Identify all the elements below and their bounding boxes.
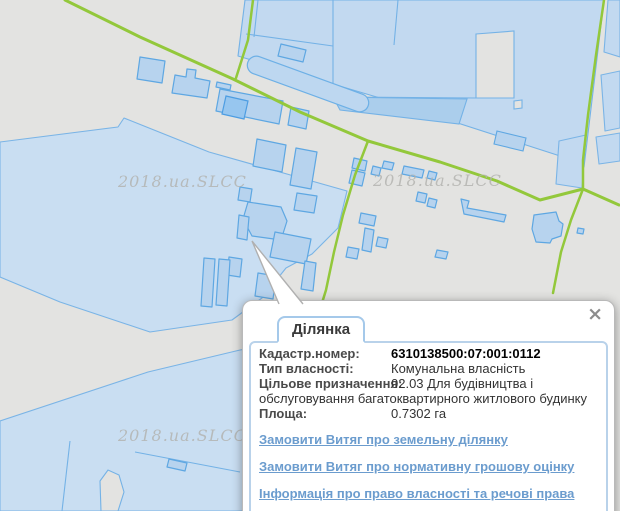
map-watermark: 2018.ua.SLCC [372, 171, 502, 190]
field-label: Кадастр.номер: [259, 346, 391, 361]
link-order-extract-valuation[interactable]: Замовити Витяг про нормативну грошову оц… [259, 459, 598, 474]
map-zone[interactable] [556, 135, 586, 188]
parcel-details-panel: Кадастр.номер:6310138500:07:001:0112 Тип… [249, 341, 608, 511]
map-parcel[interactable] [577, 228, 584, 234]
map-parcel[interactable] [216, 259, 230, 306]
map-watermark: 2018.ua.SLCC [117, 172, 247, 191]
field-label: Площа: [259, 406, 391, 421]
field-value: 02.03 Для будівництва і [391, 376, 533, 391]
map-parcel[interactable] [253, 139, 286, 172]
map-parcel[interactable] [376, 237, 388, 248]
map-parcel[interactable] [216, 82, 231, 90]
field-label: Цільове призначення: [259, 376, 391, 391]
map-watermark: 2018.ua.SLCC [117, 426, 247, 445]
map-parcel[interactable] [172, 69, 210, 98]
field-value: обслуговування багатоквартирного житлово… [259, 391, 587, 406]
close-icon[interactable]: × [587, 305, 603, 324]
map-parcel[interactable] [362, 228, 374, 252]
field-purpose-continued: обслуговування багатоквартирного житлово… [259, 391, 598, 406]
field-value: 0.7302 га [391, 406, 446, 421]
link-order-extract-parcel[interactable]: Замовити Витяг про земельну ділянку [259, 432, 598, 447]
field-ownership-type: Тип власності:Комунальна власність [259, 361, 598, 376]
map-parcel[interactable] [416, 192, 427, 203]
map-parcel[interactable] [137, 57, 165, 83]
map-parcel[interactable] [435, 250, 448, 259]
field-purpose: Цільове призначення:02.03 Для будівництв… [259, 376, 598, 391]
map-parcel[interactable] [532, 212, 563, 243]
map-parcel[interactable] [201, 258, 215, 307]
map-parcel[interactable] [427, 198, 437, 208]
tab-dilyanka[interactable]: Ділянка [277, 316, 365, 343]
map-zone[interactable] [596, 133, 620, 164]
map-parcel[interactable] [461, 199, 506, 222]
map-parcel[interactable] [301, 261, 316, 291]
map-parcel[interactable] [294, 193, 317, 213]
link-ownership-rights-info[interactable]: Інформація про право власності та речові… [259, 486, 598, 501]
map-parcel[interactable] [346, 247, 359, 259]
field-value: Комунальна власність [391, 361, 525, 376]
field-cadastral-number: Кадастр.номер:6310138500:07:001:0112 [259, 346, 598, 361]
map-zone[interactable] [604, 0, 620, 57]
map-parcel[interactable] [476, 31, 514, 98]
field-area: Площа:0.7302 га [259, 406, 598, 421]
map-parcel[interactable] [255, 273, 276, 299]
map-zone[interactable] [601, 71, 620, 131]
links-section: Замовити Витяг про земельну ділянку Замо… [259, 432, 598, 501]
map-parcel[interactable] [382, 161, 394, 170]
field-label: Тип власності: [259, 361, 391, 376]
map-parcel[interactable] [237, 215, 249, 240]
map-viewport: 2018.ua.SLCC 2018.ua.SLCC 2018.ua.SLCC ×… [0, 0, 620, 511]
map-parcel[interactable] [359, 213, 376, 226]
parcel-info-popup: × Ділянка Кадастр.номер:6310138500:07:00… [242, 300, 615, 511]
map-parcel[interactable] [514, 100, 522, 109]
field-value: 6310138500:07:001:0112 [391, 346, 541, 361]
